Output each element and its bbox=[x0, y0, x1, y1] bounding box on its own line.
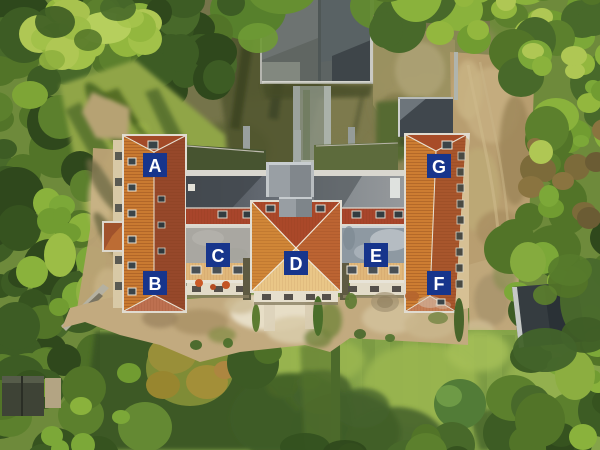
svg-text:A: A bbox=[149, 156, 162, 176]
svg-text:B: B bbox=[149, 274, 162, 294]
svg-text:F: F bbox=[434, 274, 445, 294]
svg-text:G: G bbox=[432, 157, 446, 177]
svg-text:C: C bbox=[212, 246, 225, 266]
svg-text:D: D bbox=[290, 254, 303, 274]
svg-text:E: E bbox=[370, 246, 382, 266]
